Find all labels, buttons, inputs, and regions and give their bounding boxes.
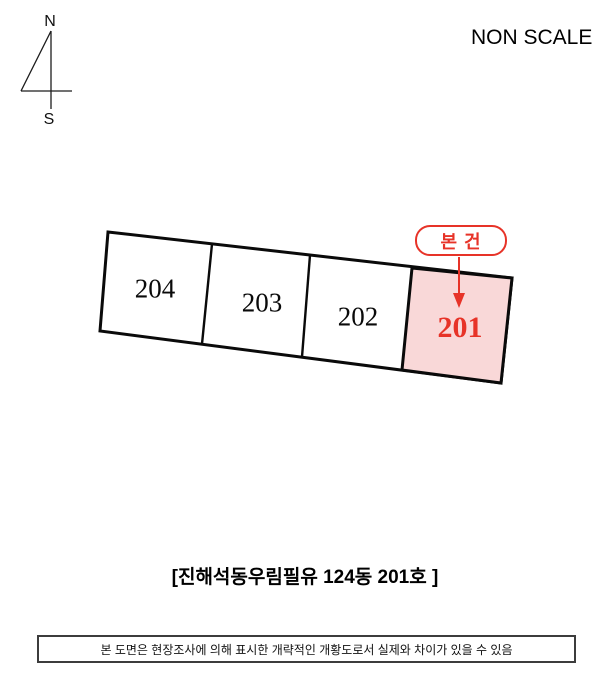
- compass-south-label: S: [44, 111, 55, 129]
- address-caption: [진해석동우림필유 124동 201호 ]: [0, 562, 610, 589]
- subject-badge: 본 건: [415, 225, 507, 256]
- parcel-202-label: 202: [338, 302, 379, 333]
- parcel-203-label: 203: [242, 288, 283, 319]
- scale-note: NON SCALE: [471, 26, 592, 50]
- compass-north-label: N: [44, 13, 56, 31]
- site-sketch-page: { "scale_note": "NON SCALE", "compass": …: [0, 0, 610, 700]
- disclaimer-box: 본 도면은 현장조사에 의해 표시한 개략적인 개황도로서 실제와 차이가 있을…: [37, 635, 576, 663]
- parcel-201-label: 201: [438, 311, 483, 345]
- parcel-diagram: [0, 0, 610, 700]
- parcel-204-label: 204: [135, 274, 176, 305]
- compass-icon: [21, 31, 72, 109]
- subject-badge-label: 본 건: [440, 228, 481, 254]
- disclaimer-text: 본 도면은 현장조사에 의해 표시한 개략적인 개황도로서 실제와 차이가 있을…: [100, 641, 512, 658]
